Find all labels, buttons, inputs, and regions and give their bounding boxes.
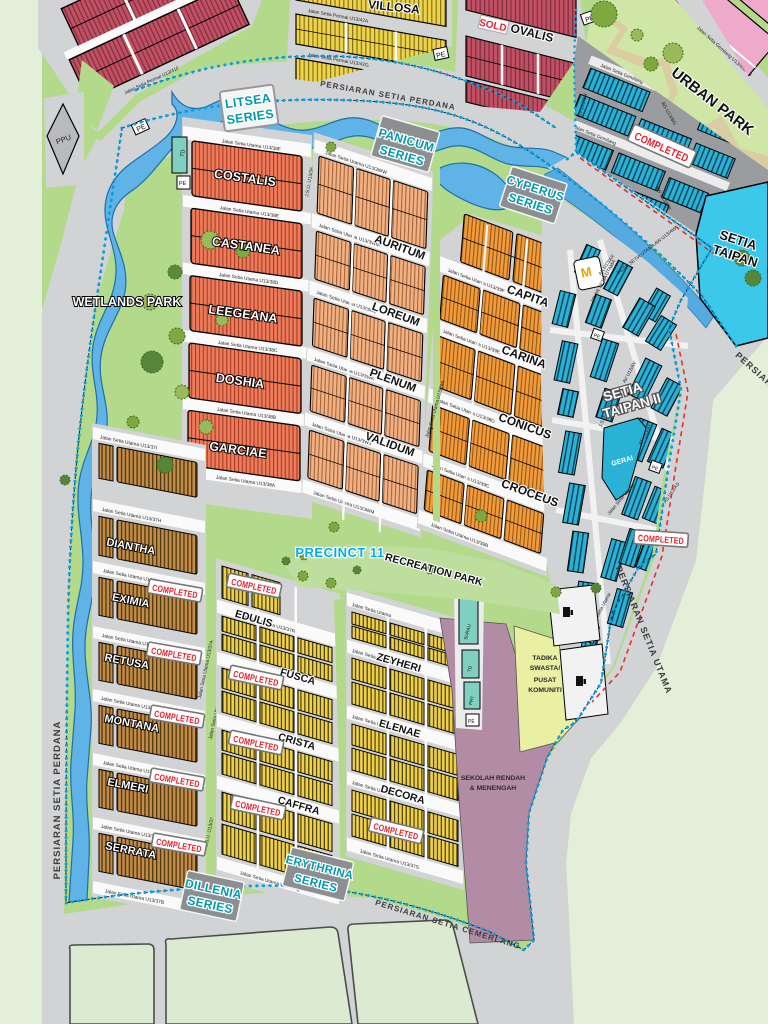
svg-text:PE: PE — [179, 181, 187, 187]
svg-text:TADIKA: TADIKA — [532, 655, 557, 662]
svg-text:& MENENGAH: & MENENGAH — [470, 785, 517, 792]
svg-text:SWASTA/: SWASTA/ — [530, 665, 561, 672]
svg-text:PE: PE — [468, 719, 475, 725]
svg-text:KOMUNITI: KOMUNITI — [528, 687, 562, 694]
svg-text:PERSIARAN SETIA PERDANA: PERSIARAN SETIA PERDANA — [52, 721, 63, 880]
svg-text:SEKOLAH RENDAH: SEKOLAH RENDAH — [461, 775, 525, 782]
svg-text:PRECINCT 11: PRECINCT 11 — [295, 545, 384, 560]
svg-text:PUSAT: PUSAT — [534, 677, 557, 684]
svg-text:TD: TD — [180, 149, 187, 157]
svg-text:WETLANDS PARK: WETLANDS PARK — [73, 295, 182, 309]
